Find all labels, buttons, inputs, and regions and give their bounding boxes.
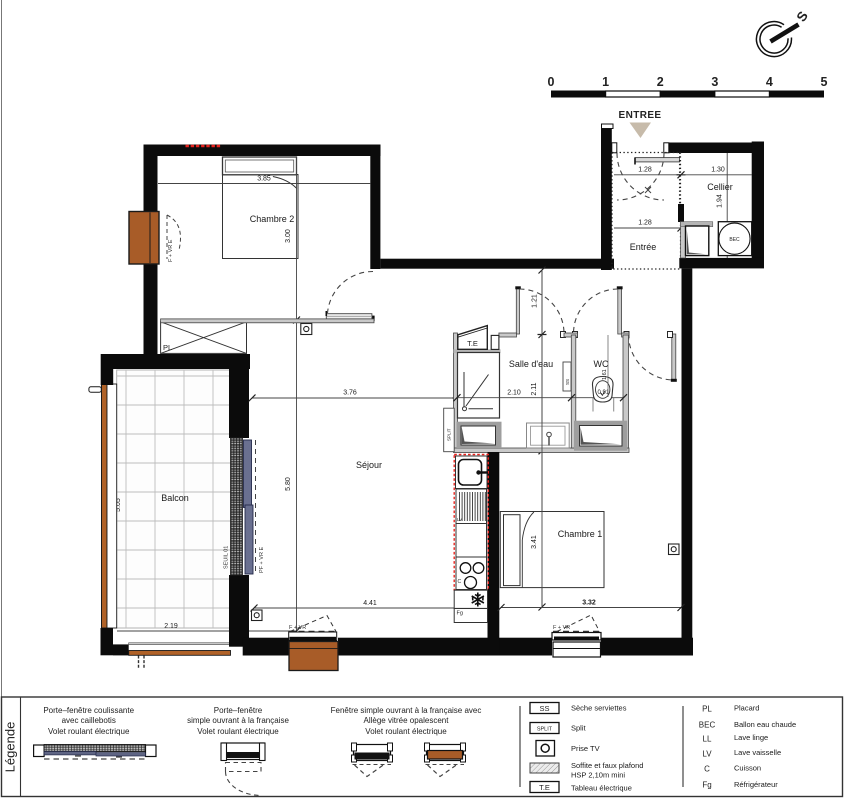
svg-text:SS: SS [565, 379, 570, 385]
svg-text:Lave vaisselle: Lave vaisselle [734, 748, 781, 757]
svg-text:1.28: 1.28 [638, 220, 652, 227]
svg-text:4.41: 4.41 [363, 600, 377, 607]
svg-text:Fg: Fg [702, 781, 711, 790]
svg-text:Séjour: Séjour [356, 460, 382, 470]
svg-text:LV: LV [457, 517, 462, 522]
svg-text:3.00: 3.00 [285, 229, 292, 243]
svg-text:1.28: 1.28 [638, 167, 652, 174]
svg-text:PL: PL [702, 705, 712, 714]
svg-text:Volet roulant électrique: Volet roulant électrique [197, 727, 279, 736]
svg-text:SS: SS [539, 704, 549, 713]
svg-text:Chambre 2: Chambre 2 [250, 214, 295, 224]
svg-text:1.94: 1.94 [717, 194, 724, 208]
svg-text:Réfrigérateur: Réfrigérateur [734, 780, 778, 789]
svg-text:2: 2 [657, 75, 664, 89]
svg-text:2.11: 2.11 [531, 382, 538, 395]
svg-text:Balcon: Balcon [161, 493, 189, 503]
svg-text:Prise TV: Prise TV [571, 744, 600, 753]
svg-text:Volet roulant électrique: Volet roulant électrique [48, 727, 130, 736]
svg-text:1.30: 1.30 [711, 167, 725, 174]
svg-text:S: S [794, 8, 811, 24]
svg-text:Cellier: Cellier [707, 182, 733, 192]
svg-text:Porte–fenêtre coulissante: Porte–fenêtre coulissante [43, 706, 134, 715]
svg-text:1.21: 1.21 [532, 294, 539, 308]
svg-text:Cuisson: Cuisson [734, 764, 761, 773]
svg-text:Salle d'eau: Salle d'eau [509, 359, 553, 369]
svg-text:F + VR E: F + VR E [168, 239, 174, 262]
svg-text:3.85: 3.85 [257, 176, 271, 183]
svg-text:Chambre 1: Chambre 1 [558, 529, 603, 539]
svg-text:simple ouvrant à la française: simple ouvrant à la française [187, 716, 289, 725]
svg-text:T.E: T.E [539, 783, 550, 792]
svg-text:3: 3 [711, 75, 718, 89]
svg-text:LL: LL [703, 735, 712, 744]
svg-text:Entrée: Entrée [630, 242, 657, 252]
svg-text:Soffite et faux plafond: Soffite et faux plafond [571, 761, 643, 770]
svg-text:ENTREE: ENTREE [619, 110, 662, 121]
svg-text:SPLIT: SPLIT [447, 428, 452, 441]
svg-text:Tableau électrique: Tableau électrique [571, 784, 632, 793]
svg-text:PF + VR E: PF + VR E [259, 547, 265, 573]
svg-text:5: 5 [821, 75, 828, 89]
svg-text:LV: LV [702, 750, 712, 759]
svg-text:2.10: 2.10 [507, 390, 521, 397]
svg-text:Porte–fenêtre: Porte–fenêtre [214, 706, 263, 715]
svg-text:Fg: Fg [457, 611, 463, 617]
svg-text:BEC: BEC [699, 721, 716, 730]
svg-text:Lave linge: Lave linge [734, 733, 768, 742]
svg-text:avec caillebotis: avec caillebotis [62, 716, 116, 725]
svg-text:T.E: T.E [467, 339, 478, 348]
svg-text:4: 4 [766, 75, 773, 89]
svg-text:Volet roulant électrique: Volet roulant électrique [365, 727, 447, 736]
svg-text:Fenêtre simple ouvrant à la fr: Fenêtre simple ouvrant à la française av… [331, 706, 482, 715]
svg-text:1.61: 1.61 [602, 369, 608, 380]
svg-text:5.80: 5.80 [285, 477, 292, 491]
svg-text:SPLIT: SPLIT [537, 727, 553, 733]
svg-text:HSP 2,10m mini: HSP 2,10m mini [571, 771, 625, 780]
svg-text:3.32: 3.32 [582, 600, 596, 607]
svg-text:WC: WC [594, 359, 609, 369]
svg-text:Légende: Légende [3, 722, 18, 773]
svg-text:Ballon eau chaude: Ballon eau chaude [734, 720, 796, 729]
svg-text:3.41: 3.41 [531, 535, 538, 549]
svg-text:C: C [458, 579, 462, 585]
svg-text:0: 0 [548, 75, 555, 89]
svg-text:Sèche serviettes: Sèche serviettes [571, 704, 627, 713]
svg-text:Allège vitrée opalescent: Allège vitrée opalescent [364, 716, 450, 725]
svg-text:C: C [704, 765, 710, 774]
svg-text:Split: Split [571, 724, 587, 733]
svg-text:SEUIL 01: SEUIL 01 [224, 546, 230, 569]
svg-text:BEC: BEC [729, 237, 740, 243]
svg-text:1: 1 [602, 75, 609, 89]
svg-text:Placard: Placard [734, 704, 759, 713]
svg-text:PL: PL [163, 343, 172, 352]
svg-text:2.19: 2.19 [164, 623, 178, 630]
svg-text:3.76: 3.76 [343, 390, 357, 397]
